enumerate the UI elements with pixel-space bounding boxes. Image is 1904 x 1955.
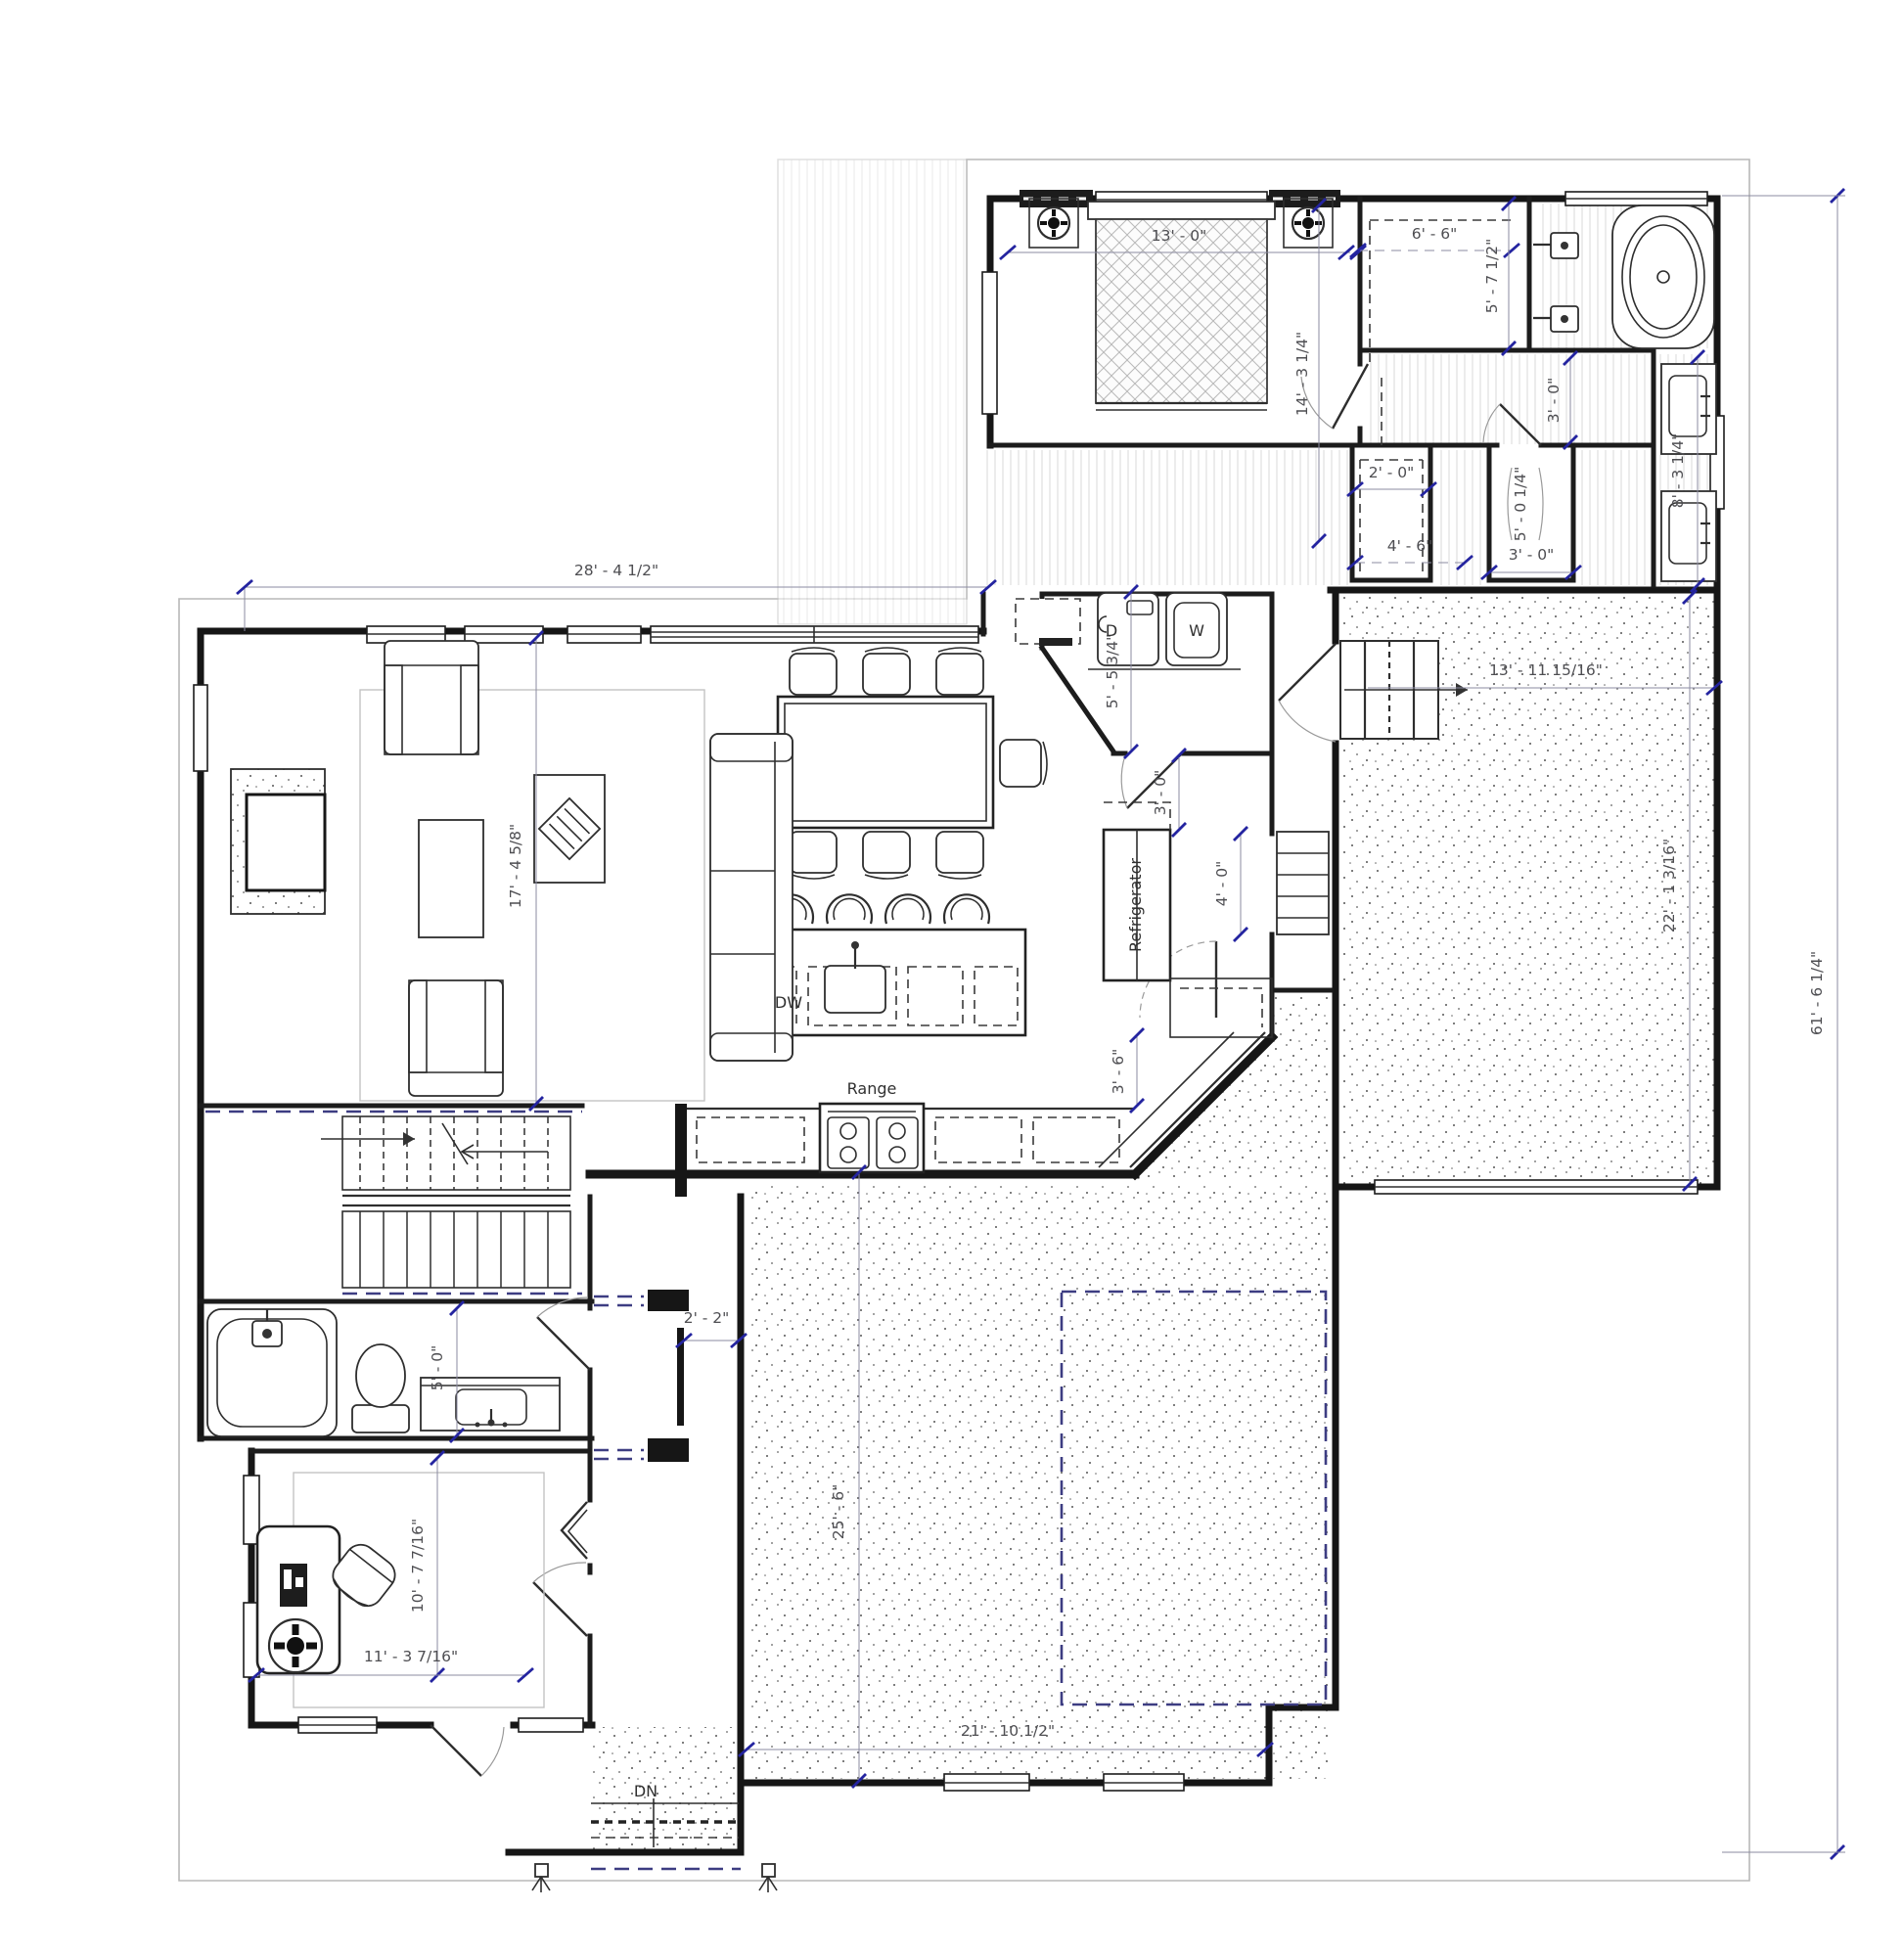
fireplace <box>231 769 325 914</box>
dim-pantry-hall: 4' - 0" <box>1213 827 1247 941</box>
dim-label: 17' - 4 5/8" <box>507 824 524 908</box>
island-sink <box>825 966 885 1013</box>
wall-light-right <box>759 1864 777 1892</box>
dim-label: 13' - 11 15/16" <box>1489 661 1603 679</box>
stairs <box>205 1112 582 1294</box>
dim-label: 5' - 0" <box>429 1345 446 1391</box>
dim-label: 3' - 6" <box>1110 1049 1127 1095</box>
dim-label: 5' - 5 3/4" <box>1104 634 1121 708</box>
dryer-label: D <box>1106 621 1117 640</box>
dim-label: 8' - 3 1/4" <box>1669 433 1687 508</box>
living-left-window <box>194 685 207 771</box>
main-bath <box>207 1309 560 1436</box>
laundry-closet-sill <box>1039 638 1072 646</box>
garage-bottom-window-1 <box>944 1774 1029 1791</box>
dim-label: 3' - 0" <box>1152 770 1169 816</box>
dim-label: 11' - 3 7/16" <box>364 1648 458 1665</box>
dim-label: 6' - 6" <box>1412 225 1458 243</box>
pantry-shelves <box>1277 832 1329 934</box>
garage-door-band <box>1375 1180 1698 1194</box>
dim-aisle: 3' - 6" <box>1110 1028 1144 1113</box>
bedroom-left-window <box>982 272 997 414</box>
bathtub <box>207 1309 337 1436</box>
dim-label: 4' - 0" <box>1213 861 1231 907</box>
dim-label: 13' - 0" <box>1152 227 1206 245</box>
hall-pier-south <box>648 1438 689 1462</box>
dim-label: 5' - 0 1/4" <box>1512 467 1529 541</box>
bedroom-door <box>1301 364 1368 429</box>
armchair-top <box>385 641 478 754</box>
dim-label: 5' - 7 1/2" <box>1483 239 1501 313</box>
hall-pier-north <box>648 1290 689 1311</box>
dim-overall-depth: 61' - 6 1/4" <box>1722 189 1845 1859</box>
counter-end-pier <box>675 1104 687 1197</box>
office <box>257 1473 544 1707</box>
dim-label: 4' - 6" <box>1387 537 1433 555</box>
dim-label: 3' - 0" <box>1545 378 1563 424</box>
floor-plan-page: 28' - 4 1/2" 13' - 0" 14' - 3 1/4" 6' - … <box>0 0 1904 1955</box>
toilet <box>352 1344 409 1432</box>
front-door <box>431 1725 504 1776</box>
bed-headboard <box>1088 202 1275 219</box>
laundry-closet <box>1016 599 1080 644</box>
office-door <box>533 1563 587 1636</box>
armchair-bottom <box>409 980 503 1096</box>
refrigerator-label: Refrigerator <box>1126 858 1145 952</box>
dim-wc-width: 3' - 0" <box>1481 546 1581 579</box>
down-label: DN <box>634 1782 657 1800</box>
wall-light-left <box>532 1864 550 1892</box>
dim-label: 2' - 0" <box>1369 464 1415 481</box>
office-bifold-doors <box>562 1502 587 1559</box>
dim-label: 28' - 4 1/2" <box>574 562 658 579</box>
bed-mattress <box>1096 219 1267 403</box>
dim-label: 22' - 1 3/16" <box>1660 839 1678 932</box>
office-bottom-window <box>298 1717 377 1733</box>
dim-label: 3' - 0" <box>1509 546 1555 564</box>
dim-niche: 2' - 2" <box>676 1309 747 1347</box>
dim-label: 61' - 6 1/4" <box>1808 951 1826 1035</box>
dining-table <box>778 697 993 828</box>
garage-bottom-floor <box>748 1184 1331 1779</box>
dim-label: 21' - 10 1/2" <box>961 1722 1055 1740</box>
dim-label: 2' - 2" <box>684 1309 730 1327</box>
dim-label: 14' - 3 1/4" <box>1293 332 1311 416</box>
office-ceiling-fan <box>269 1619 322 1672</box>
dim-hall3: 3' - 0" <box>1152 749 1186 837</box>
dim-label: 10' - 7 7/16" <box>409 1519 427 1613</box>
washer-label: W <box>1189 621 1204 640</box>
dim-label: 25' - 6" <box>830 1484 847 1539</box>
stair-treads-upper <box>360 1116 548 1190</box>
entry-sidelight <box>519 1718 583 1732</box>
bar-stools <box>768 894 989 924</box>
freestanding-tub <box>1612 205 1714 348</box>
bath-door <box>537 1297 590 1370</box>
dim-wc-length: 5' - 0 1/4" <box>1508 467 1543 541</box>
range <box>820 1104 924 1172</box>
garage-bottom-window-2 <box>1104 1774 1184 1791</box>
stair-direction-arrows <box>321 1123 548 1164</box>
dishwasher-label: DW <box>775 993 802 1012</box>
side-table-lamp <box>534 775 605 883</box>
eave-hatch <box>778 159 967 624</box>
bath-top-window <box>1565 192 1707 205</box>
porch-floor <box>591 1727 739 1849</box>
range-label: Range <box>847 1079 897 1098</box>
floor-plan-drawing: 28' - 4 1/2" 13' - 0" 14' - 3 1/4" 6' - … <box>0 0 1904 1955</box>
garage-entry-door <box>1279 644 1336 742</box>
coffee-table <box>419 820 483 937</box>
stair-treads-lower <box>360 1211 548 1288</box>
